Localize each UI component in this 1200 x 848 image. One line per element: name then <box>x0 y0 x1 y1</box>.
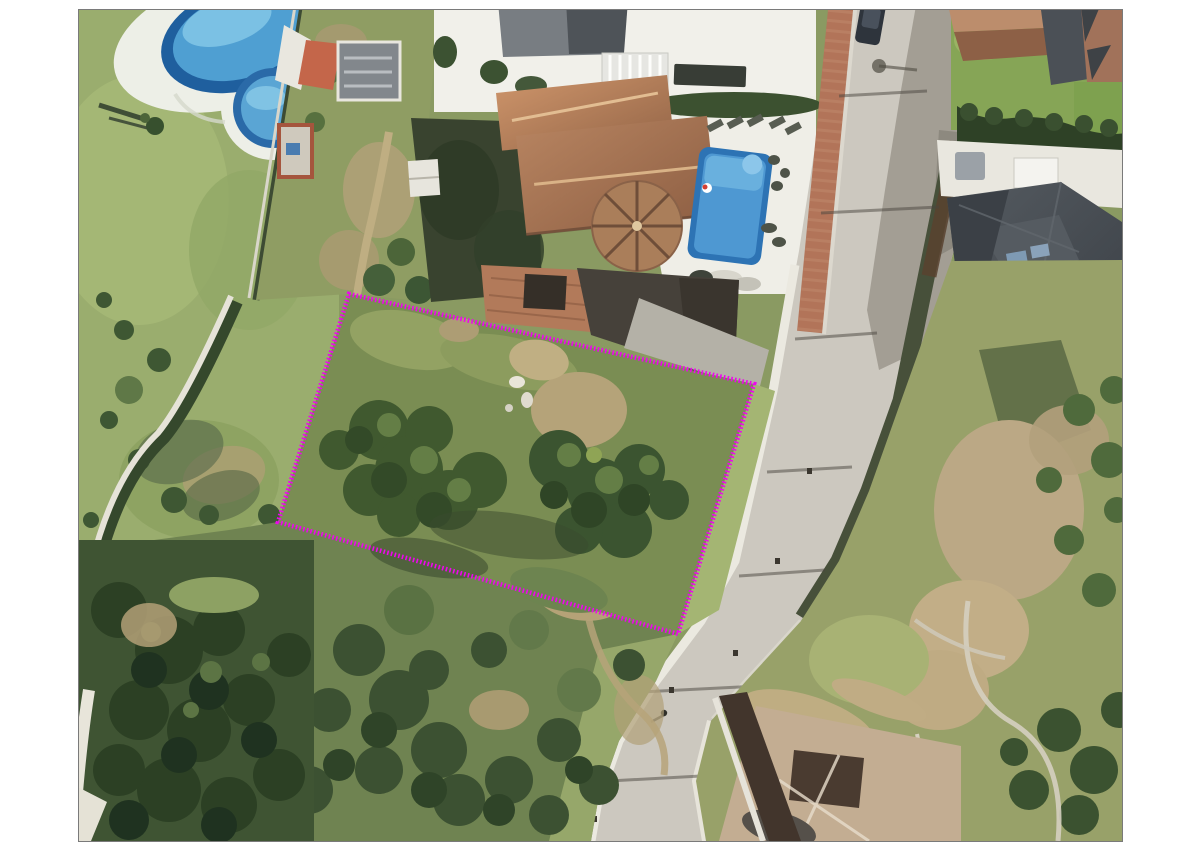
ne-car <box>955 152 985 180</box>
white-rocks <box>509 376 525 388</box>
aerial-photo-frame <box>78 9 1123 842</box>
page-background <box>0 0 1200 848</box>
white-shed <box>408 159 440 197</box>
south-woodland <box>79 540 314 841</box>
window-strip <box>674 64 747 87</box>
red-shed <box>279 125 312 177</box>
villa-hedge <box>646 92 822 118</box>
villa-pool <box>686 146 773 266</box>
gazebo-roof <box>592 181 682 271</box>
aerial-photo <box>79 10 1122 841</box>
dark-shed <box>523 274 567 310</box>
